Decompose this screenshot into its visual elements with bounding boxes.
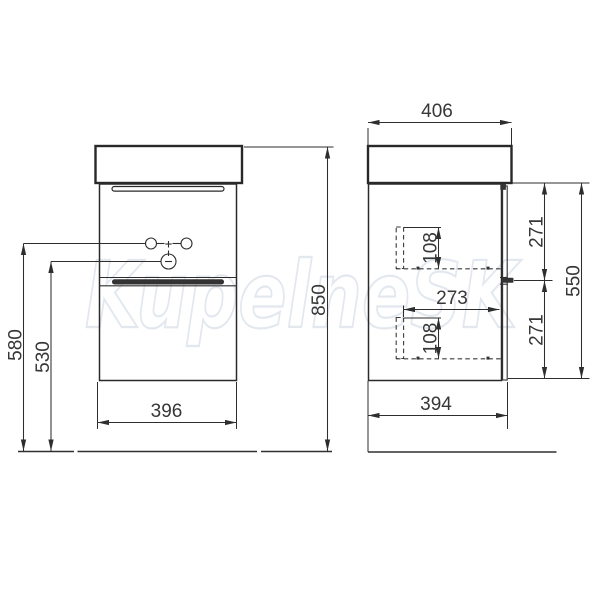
dim-406-label: 406	[421, 101, 453, 122]
side-top-handle	[500, 184, 506, 190]
dim-530-label: 530	[33, 341, 54, 373]
side-middle-handle	[503, 278, 514, 283]
drawer-glide-dot	[487, 357, 490, 360]
vanity-cabinet-drawing: KupelneSK 580 530	[0, 0, 600, 600]
dim-580-label: 580	[6, 329, 27, 361]
drawer-glide-dot	[417, 357, 420, 360]
technical-drawing-canvas: KupelneSK 580 530	[0, 0, 600, 600]
dim-273-label: 273	[436, 288, 468, 309]
dim-396-label: 396	[151, 401, 183, 422]
drawer-glide-dot	[417, 267, 420, 270]
dim-271-upper-label: 271	[527, 216, 548, 248]
dim-550-label: 550	[564, 265, 585, 297]
front-middle-handle	[112, 279, 224, 284]
dim-271-lower-label: 271	[527, 314, 548, 346]
front-washbasin	[96, 146, 243, 183]
dim-108-upper-label: 108	[421, 232, 442, 264]
ground-line	[18, 452, 557, 453]
dim-850-label: 850	[309, 284, 330, 316]
dim-108-lower-label: 108	[421, 323, 442, 355]
front-top-handle	[112, 187, 224, 192]
side-washbasin	[368, 146, 512, 183]
drawer-glide-dot	[487, 267, 490, 270]
dim-394-label: 394	[420, 394, 452, 415]
